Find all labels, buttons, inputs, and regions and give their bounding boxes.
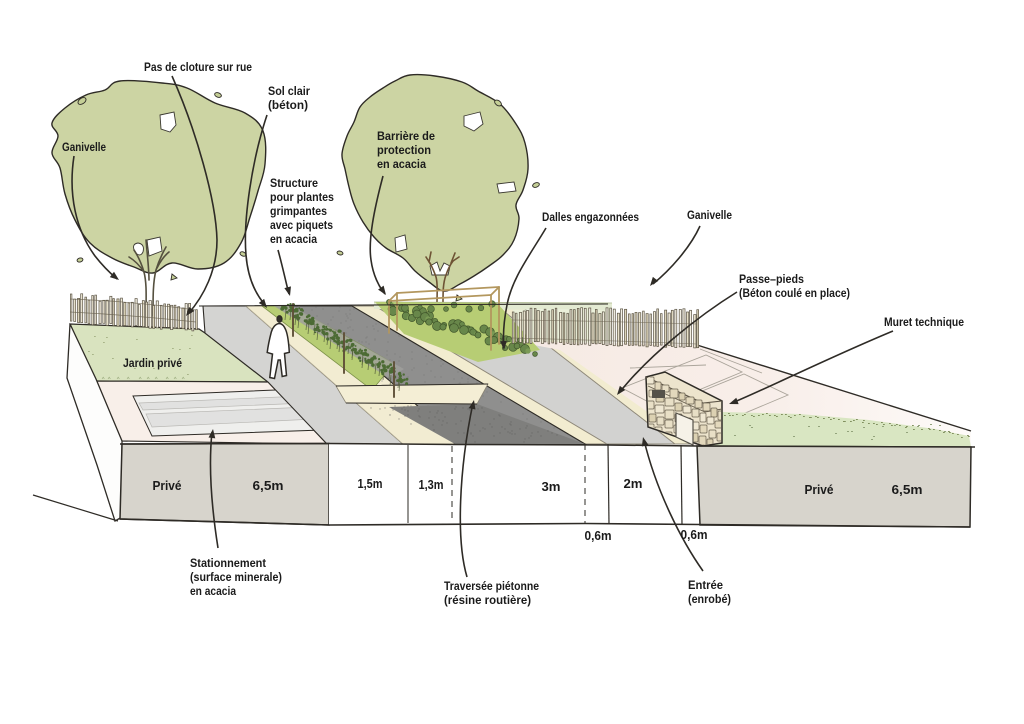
svg-text:avec piquets: avec piquets — [270, 218, 333, 232]
svg-text:0,6m: 0,6m — [681, 527, 708, 542]
svg-text:Sol clair: Sol clair — [268, 84, 310, 98]
svg-text:Ganivelle: Ganivelle — [62, 140, 106, 154]
svg-text:Stationnement: Stationnement — [190, 556, 266, 570]
svg-text:Privé: Privé — [805, 482, 834, 497]
svg-text:Passe–pieds: Passe–pieds — [739, 272, 804, 286]
svg-text:pour plantes: pour plantes — [270, 190, 334, 204]
svg-text:0,6m: 0,6m — [585, 528, 612, 543]
svg-text:1,5m: 1,5m — [358, 476, 383, 491]
svg-text:en acacia: en acacia — [270, 232, 317, 246]
svg-text:1,3m: 1,3m — [419, 477, 444, 492]
svg-text:6,5m: 6,5m — [892, 482, 923, 497]
svg-text:Barrière de: Barrière de — [377, 129, 435, 143]
svg-text:(surface minerale): (surface minerale) — [190, 570, 282, 584]
svg-text:Ganivelle: Ganivelle — [687, 208, 732, 222]
svg-text:Muret technique: Muret technique — [884, 315, 964, 329]
svg-text:Dalles engazonnées: Dalles engazonnées — [542, 210, 639, 224]
svg-text:(enrobé): (enrobé) — [688, 592, 731, 606]
svg-text:Structure: Structure — [270, 176, 318, 190]
svg-text:en acacia: en acacia — [377, 157, 426, 171]
svg-text:Jardin privé: Jardin privé — [123, 356, 182, 370]
svg-text:6,5m: 6,5m — [253, 478, 284, 493]
svg-text:Privé: Privé — [153, 478, 182, 493]
svg-text:grimpantes: grimpantes — [270, 204, 327, 218]
svg-text:(résine routière): (résine routière) — [444, 593, 531, 607]
svg-text:Entrée: Entrée — [688, 578, 723, 592]
svg-text:Traversée piétonne: Traversée piétonne — [444, 579, 539, 593]
svg-text:(béton): (béton) — [268, 98, 308, 112]
svg-text:protection: protection — [377, 143, 431, 157]
svg-text:2m: 2m — [624, 476, 643, 491]
svg-text:3m: 3m — [542, 479, 561, 494]
svg-text:en acacia: en acacia — [190, 584, 236, 598]
svg-text:(Béton coulé en place): (Béton coulé en place) — [739, 286, 850, 300]
svg-text:Pas de cloture sur rue: Pas de cloture sur rue — [144, 60, 252, 74]
